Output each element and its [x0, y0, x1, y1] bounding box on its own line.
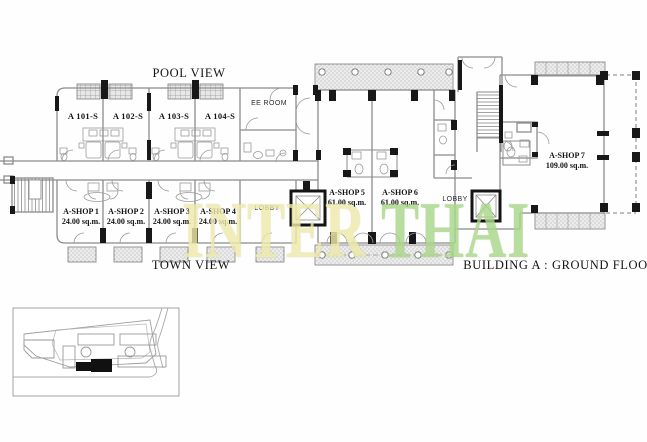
- shop-label-1: A-SHOP 1 24.00 sq.m.: [62, 207, 100, 226]
- shop-name: A-SHOP 1: [62, 207, 100, 217]
- watermark-secondary: THAI: [381, 185, 530, 275]
- apartment-label-101: A 101-S: [68, 112, 98, 121]
- apartment-label-102: A 102-S: [113, 112, 143, 121]
- watermark-primary: INTER: [182, 185, 367, 275]
- apartment-label-104: A 104-S: [205, 112, 235, 121]
- shop-area: 24.00 sq.m.: [107, 217, 145, 227]
- shop-name: A-SHOP 2: [107, 207, 145, 217]
- shop-name: A-SHOP 7: [546, 151, 588, 161]
- shop-label-2: A-SHOP 2 24.00 sq.m.: [107, 207, 145, 226]
- ee-room-label: EE ROOM: [251, 100, 287, 108]
- watermark: INTER THAI: [182, 184, 530, 276]
- floor-plan-page: POOL VIEW TOWN VIEW BUILDING A : GROUND …: [0, 0, 647, 442]
- shop-label-7: A-SHOP 7 109.00 sq.m.: [546, 151, 588, 170]
- pool-view-label: POOL VIEW: [152, 67, 225, 81]
- shop-area: 109.00 sq.m.: [546, 161, 588, 171]
- shop-area: 24.00 sq.m.: [62, 217, 100, 227]
- site-map-inset: [13, 308, 179, 396]
- apartment-label-103: A 103-S: [159, 112, 189, 121]
